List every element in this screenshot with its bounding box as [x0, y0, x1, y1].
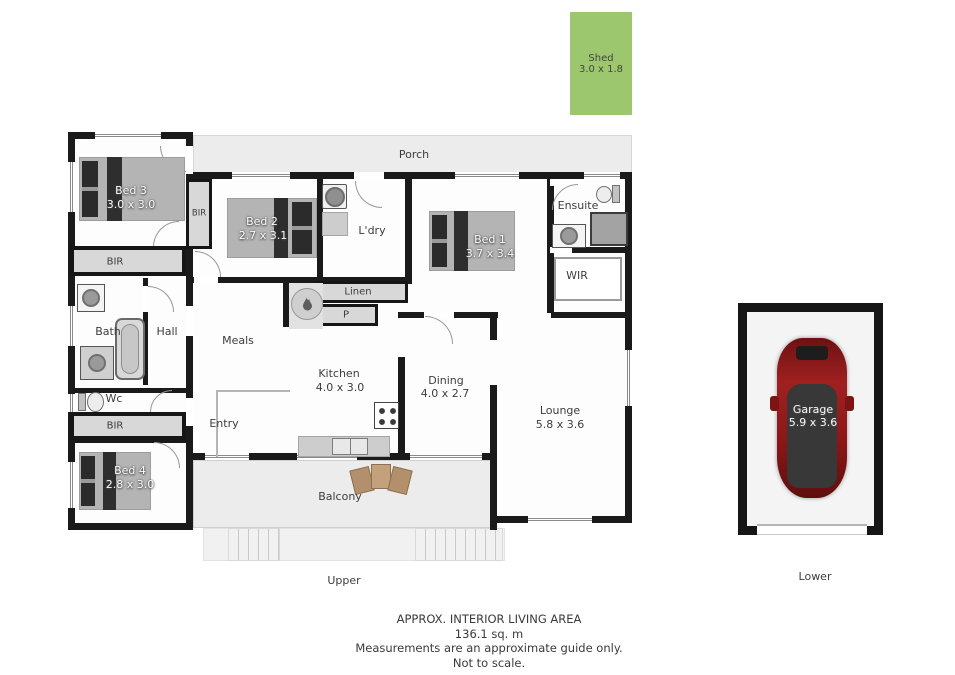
footer-line-4: Not to scale.: [355, 656, 622, 671]
laundry-bench: [322, 212, 348, 236]
wall: [186, 453, 193, 530]
room-label-bath: Bath: [95, 326, 121, 338]
shed-label: Shed: [588, 53, 613, 64]
footer-line-1: APPROX. INTERIOR LIVING AREA: [355, 612, 622, 627]
footer-line-2: 136.1 sq. m: [355, 627, 622, 642]
window: [95, 132, 161, 139]
window: [625, 350, 632, 406]
room-label-wc: Wc: [106, 393, 123, 405]
room-label-bed3: Bed 3: [115, 185, 147, 197]
room-label-balcony: Balcony: [318, 491, 362, 503]
ensuite-toilet-tank-icon: [612, 185, 620, 203]
car-mirror-left: [770, 396, 779, 411]
wc-toilet-bowl-icon: [87, 392, 104, 412]
room-label-meals: Meals: [222, 335, 254, 347]
window: [528, 516, 592, 523]
window: [455, 172, 519, 179]
lounge-floor: [497, 455, 625, 516]
room-label-bir-top: BIR: [107, 257, 124, 268]
room-label-bed4: Bed 4: [114, 465, 146, 477]
window: [232, 172, 290, 179]
room-label-bir-side: BIR: [192, 209, 206, 218]
stairs-right: [415, 528, 503, 561]
room-dims-bed1: 3.7 x 3.4: [466, 248, 515, 260]
washer-icon: [322, 184, 347, 209]
door-gap: [194, 277, 218, 283]
room-label-linen: Linen: [344, 287, 371, 298]
wall: [490, 385, 497, 460]
wc-toilet-icon: [78, 393, 86, 411]
bir-lower-closet: [70, 412, 186, 440]
level-label-lower: Lower: [799, 571, 832, 583]
wall: [405, 179, 412, 284]
door-gap: [186, 306, 193, 336]
ensuite-shower-icon: [590, 212, 628, 246]
room-dims-bed3: 3.0 x 3.0: [107, 199, 156, 211]
room-label-pantry: P: [343, 310, 349, 321]
room-label-bed1: Bed 1: [474, 234, 506, 246]
car-sunroof: [796, 346, 828, 360]
wall: [551, 312, 625, 318]
room-label-ensuite: Ensuite: [558, 200, 599, 212]
flame-icon: [300, 296, 316, 314]
wall: [490, 312, 497, 340]
footer-disclaimer: APPROX. INTERIOR LIVING AREA 136.1 sq. m…: [355, 612, 622, 670]
stairs-left: [228, 528, 280, 561]
wall: [490, 453, 497, 530]
room-label-kitchen: Kitchen: [318, 368, 359, 380]
window: [68, 462, 75, 508]
room-dims-kitchen: 4.0 x 3.0: [316, 382, 365, 394]
car-cabin: [787, 384, 837, 488]
window: [68, 394, 75, 412]
room-label-hall: Hall: [156, 326, 177, 338]
room-label-entry: Entry: [209, 418, 238, 430]
wall: [68, 523, 193, 530]
window: [584, 172, 620, 179]
window: [68, 162, 75, 212]
room-label-bir-lower: BIR: [107, 421, 124, 432]
stove-icon: [374, 402, 399, 429]
water-heater-icon: [291, 288, 323, 320]
room-label-porch: Porch: [399, 149, 429, 161]
wall: [398, 357, 405, 460]
room-label-wir: WIR: [566, 270, 588, 282]
footer-line-3: Measurements are an approximate guide on…: [355, 641, 622, 656]
room-dims-bed2: 2.7 x 3.1: [239, 230, 288, 242]
window: [410, 453, 482, 460]
level-label-upper: Upper: [327, 575, 360, 587]
window: [205, 453, 249, 460]
room-label-dining: Dining: [428, 375, 464, 387]
bir-top-closet: [70, 246, 186, 276]
kitchen-sink-icon: [332, 438, 368, 455]
shed-room: Shed 3.0 x 1.8: [570, 12, 632, 115]
room-dims-dining: 4.0 x 2.7: [421, 388, 470, 400]
shed-dims: 3.0 x 1.8: [579, 64, 623, 75]
bath-basin-icon: [80, 346, 114, 380]
door-gap: [354, 172, 384, 179]
floor-plan-canvas: Shed 3.0 x 1.8: [0, 0, 955, 675]
car-mirror-right: [845, 396, 854, 411]
door-gap: [186, 398, 193, 426]
window: [68, 306, 75, 346]
room-dims-garage: 5.9 x 3.6: [789, 417, 838, 429]
room-dims-lounge: 5.8 x 3.6: [536, 419, 585, 431]
kitchen-bench-edge: [216, 390, 290, 392]
door-gap: [186, 146, 193, 174]
room-dims-bed4: 2.8 x 3.0: [106, 479, 155, 491]
room-label-garage: Garage: [793, 404, 833, 416]
bath-vanity-icon: [77, 284, 105, 312]
ensuite-basin-icon: [552, 224, 586, 248]
garage-door-opening: [757, 524, 867, 535]
room-label-lounge: Lounge: [540, 405, 580, 417]
room-label-bed2: Bed 2: [246, 216, 278, 228]
room-label-ldry: L'dry: [358, 225, 385, 237]
